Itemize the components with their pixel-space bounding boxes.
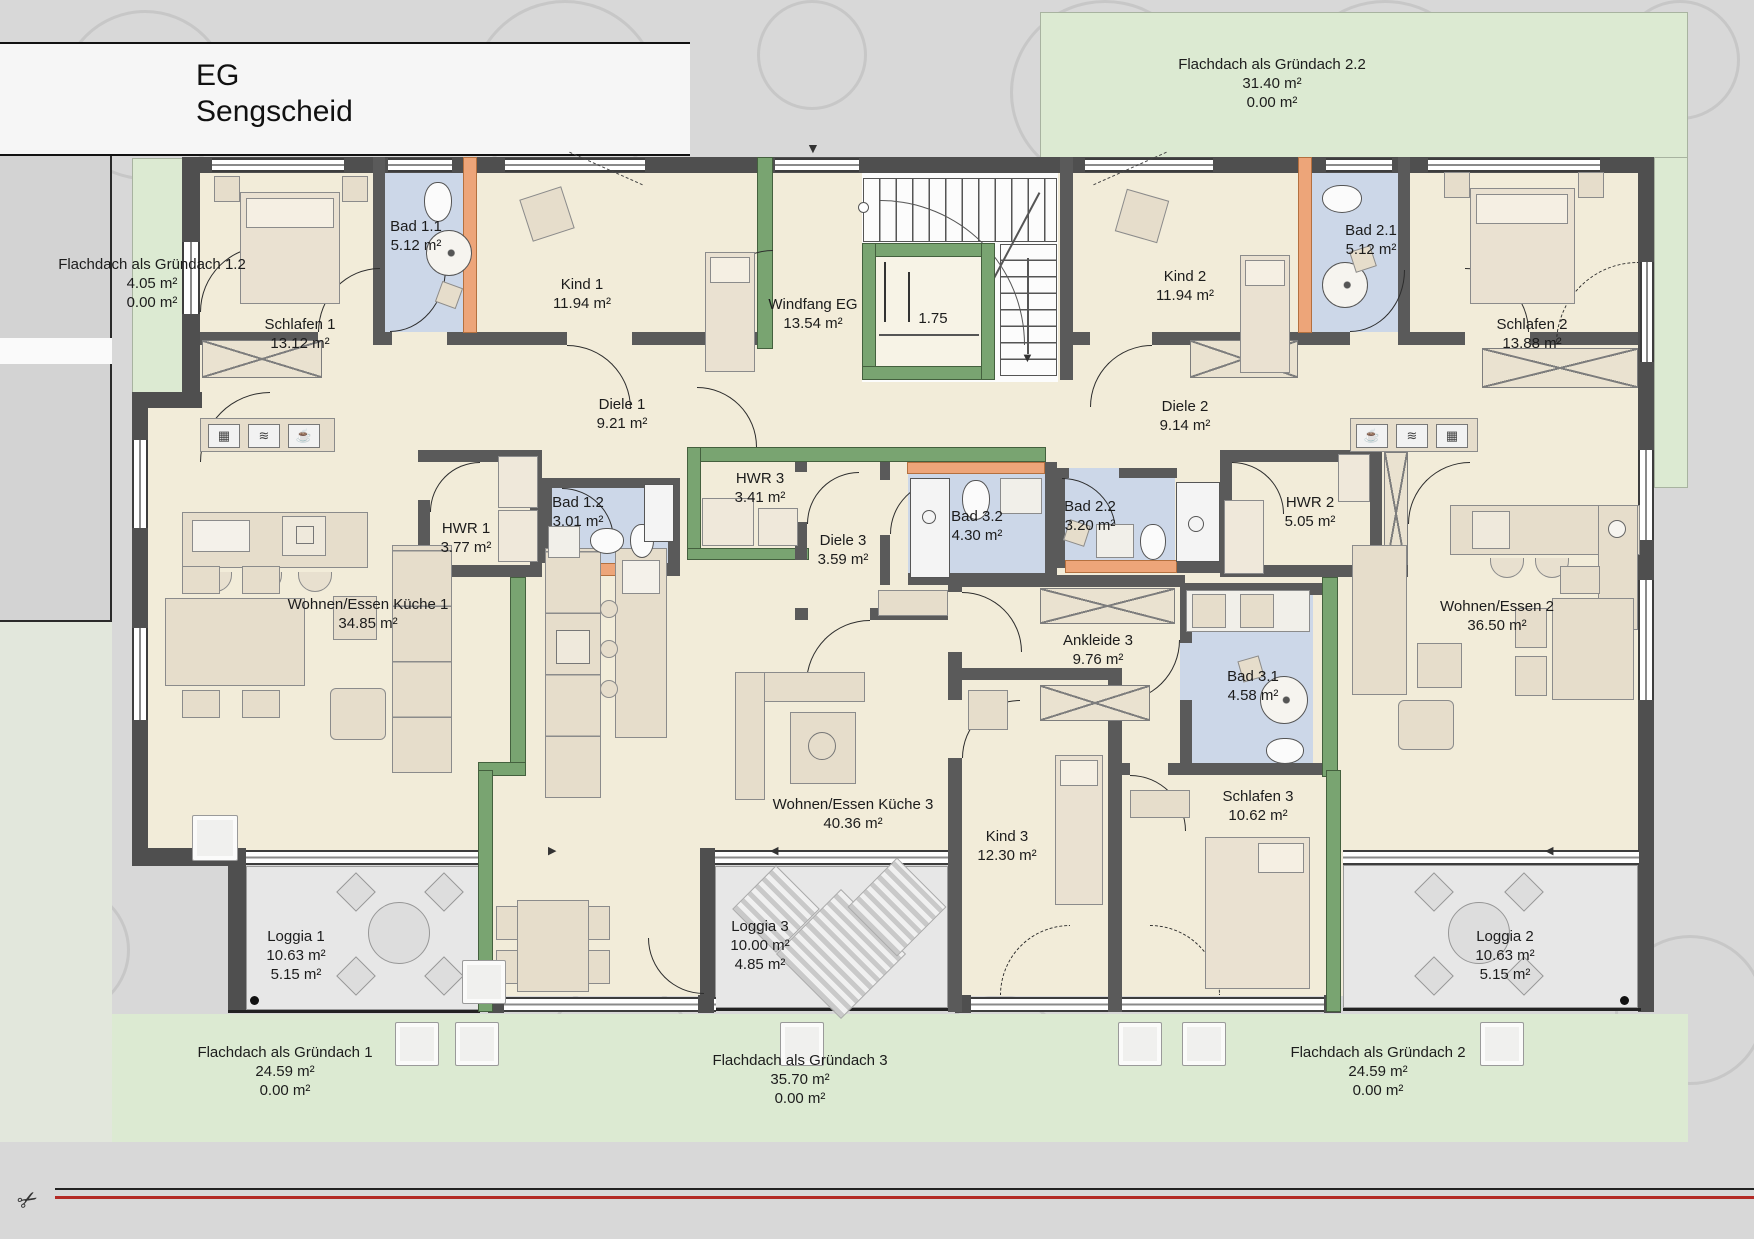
washer (1192, 594, 1226, 628)
label-wohnen1: Wohnen/Essen Küche 134.85 m² (238, 596, 498, 634)
label-gruendach22: Flachdach als Gründach 2.231.40 m²0.00 m… (1112, 56, 1432, 112)
chair (496, 906, 518, 940)
wall-segment (880, 462, 890, 480)
chair (182, 690, 220, 718)
tree-sketch (757, 0, 867, 110)
elevator-dim-line (879, 334, 979, 336)
shower (644, 484, 674, 542)
label-schlafen1: Schlafen 113.12 m² (210, 316, 390, 354)
neighbor-building (0, 156, 112, 622)
elevator-wall (981, 243, 995, 380)
nightstand (1444, 172, 1470, 198)
elevator-wall (862, 243, 995, 257)
label-loggia2: Loggia 210.63 m²5.15 m² (1425, 928, 1585, 984)
planter (462, 960, 506, 1004)
project-label: Sengscheid (196, 95, 353, 128)
sink (1608, 520, 1626, 538)
wardrobe (1482, 348, 1638, 388)
label-schlafen2: Schlafen 213.88 m² (1442, 316, 1622, 354)
corner-mark (1620, 996, 1629, 1005)
floor-plan: EG Sengscheid ▼ ▶ (0, 0, 1754, 1239)
rail-arrow-icon: ◀ (770, 844, 778, 857)
label-kind3: Kind 312.30 m² (937, 828, 1077, 866)
desk (968, 690, 1008, 730)
nightstand (342, 176, 368, 202)
window (132, 440, 148, 528)
label-kind1: Kind 111.94 m² (492, 276, 672, 314)
stool (600, 680, 618, 698)
label-loggia3: Loggia 310.00 m²4.85 m² (680, 918, 840, 974)
elevator-wall (862, 366, 995, 380)
floor-label: EG (196, 59, 239, 92)
sliding-door-wohnen1 (246, 850, 480, 865)
dishwasher-icon: ≋ (248, 424, 280, 448)
label-bad21: Bad 2.15.12 m² (1311, 222, 1431, 260)
toilet (1322, 185, 1362, 213)
dishwasher-icon: ≋ (1396, 424, 1428, 448)
green-party-wall (510, 577, 526, 769)
label-schlafen3: Schlafen 310.62 m² (1168, 788, 1348, 826)
window (132, 628, 148, 720)
armchair (330, 688, 386, 740)
sliding-door-loggia3 (715, 850, 948, 865)
orange-wall (1065, 560, 1177, 573)
corner-mark (250, 996, 259, 1005)
chair (242, 690, 280, 718)
label-wohnen2: Wohnen/Essen 236.50 m² (1367, 598, 1627, 636)
window (1638, 580, 1654, 700)
orange-wall (907, 462, 1045, 474)
green-roof-strip-right (1654, 158, 1688, 488)
bed-pillow (246, 198, 334, 228)
label-bad22: Bad 2.23.20 m² (1020, 498, 1160, 536)
label-gruendach1: Flachdach als Gründach 124.59 m²0.00 m² (165, 1044, 405, 1100)
sink (1240, 594, 1274, 628)
green-lawn-west (0, 622, 112, 1142)
wall-segment (795, 608, 808, 620)
wall-segment (1060, 157, 1073, 380)
chair (588, 906, 610, 940)
label-loggia1: Loggia 110.63 m²5.15 m² (216, 928, 376, 984)
shelf-unit (392, 545, 452, 773)
cooktop (556, 630, 590, 664)
sofa (735, 672, 765, 800)
wardrobe (1040, 588, 1175, 624)
window (1326, 158, 1392, 172)
chair (242, 566, 280, 594)
loggia1-edge (228, 1010, 480, 1013)
armchair (1398, 700, 1454, 750)
rail-arrow-icon: ▶ (548, 844, 556, 857)
label-hwr3: HWR 33.41 m² (690, 470, 830, 508)
loggia2-edge (1343, 1008, 1641, 1011)
dining-table (517, 900, 589, 992)
wall-segment (948, 652, 962, 700)
label-bad11: Bad 1.15.12 m² (356, 218, 476, 256)
stair-start-mark (858, 202, 869, 213)
label-gruendach2: Flachdach als Gründach 224.59 m²0.00 m² (1258, 1044, 1498, 1100)
bed-pillow (1060, 760, 1098, 786)
green-party-wall (1322, 577, 1338, 777)
window (505, 158, 645, 172)
glass-front-bay1 (492, 997, 716, 1012)
label-bad12: Bad 1.23.01 m² (508, 494, 648, 532)
label-windfang: Windfang EG13.54 m² (723, 296, 903, 334)
terrace-door-east (1640, 262, 1654, 362)
rail-arrow-icon: ◀ (1545, 844, 1553, 857)
wall-post (698, 995, 714, 1013)
label-diele1: Diele 19.21 m² (532, 396, 712, 434)
margin-mark: ✂ (12, 1183, 44, 1218)
loggia-table (368, 902, 430, 964)
nightstand (1578, 172, 1604, 198)
window (1638, 450, 1654, 540)
label-gruendach3: Flachdach als Gründach 335.70 m²0.00 m² (680, 1052, 920, 1108)
wall-segment (1168, 763, 1322, 775)
label-kind2: Kind 211.94 m² (1095, 268, 1275, 306)
cooktop (1472, 511, 1510, 549)
kitchen-row (545, 548, 601, 798)
sink (192, 520, 250, 552)
planter (192, 815, 238, 861)
sheet-red-line (55, 1196, 1754, 1199)
window (388, 158, 452, 172)
window (1428, 158, 1600, 172)
chair (1560, 566, 1600, 594)
wall-segment (1180, 700, 1192, 763)
entry-door (775, 158, 859, 172)
label-ankleide3: Ankleide 39.76 m² (1008, 632, 1188, 670)
nightstand (214, 176, 240, 202)
wall-segment (955, 575, 1185, 587)
planter (455, 1022, 499, 1066)
stool (600, 600, 618, 618)
cooktop-detail (296, 526, 314, 544)
tv-bench (878, 590, 948, 616)
shower-drain (1188, 516, 1204, 532)
chair (588, 950, 610, 984)
label-hwr2: HWR 25.05 m² (1240, 494, 1380, 532)
bed-pillow (1258, 843, 1304, 873)
loggia2-wall-right (1638, 848, 1654, 1012)
sliding-door-loggia2 (1343, 850, 1639, 865)
wall-segment (1108, 763, 1130, 775)
toilet (1266, 738, 1304, 764)
orange-wall (1298, 157, 1312, 333)
wall-segment (447, 332, 567, 345)
label-gruendach12: Flachdach als Gründach 1.24.05 m²0.00 m² (32, 256, 272, 312)
chair (1515, 656, 1547, 696)
sheet-line (55, 1188, 1754, 1190)
washbasin (590, 528, 624, 554)
wardrobe (1040, 685, 1150, 721)
planter (1182, 1022, 1226, 1066)
coffee-icon: ☕ (288, 424, 320, 448)
stove-icon: ▦ (1436, 424, 1468, 448)
glass-front-bay2 (971, 997, 1326, 1012)
neighbor-building-gap (0, 338, 112, 364)
plan-title: EG Sengscheid (196, 58, 516, 130)
stair-arrow-line (1027, 258, 1029, 354)
coffee-icon: ☕ (1356, 424, 1388, 448)
stove-icon: ▦ (208, 424, 240, 448)
label-diele3: Diele 33.59 m² (773, 532, 913, 570)
toilet (424, 182, 452, 222)
window (212, 158, 344, 172)
side-table (1417, 643, 1462, 688)
bed-pillow (710, 257, 750, 283)
stair-arrow-icon: ▼ (1021, 350, 1034, 365)
stair-dimension: 1.75 (898, 310, 968, 329)
chair (182, 566, 220, 594)
bed-pillow (1476, 194, 1568, 224)
table-plant (808, 732, 836, 760)
planter (1118, 1022, 1162, 1066)
label-diele2: Diele 29.14 m² (1095, 398, 1275, 436)
wall-segment (1119, 468, 1177, 478)
label-bad31: Bad 3.14.58 m² (1183, 668, 1323, 706)
green-wall-core (700, 447, 1046, 462)
wall-segment (962, 668, 1108, 680)
stool (600, 640, 618, 658)
sink (622, 560, 660, 594)
entry-arrow-icon: ▼ (806, 140, 820, 156)
